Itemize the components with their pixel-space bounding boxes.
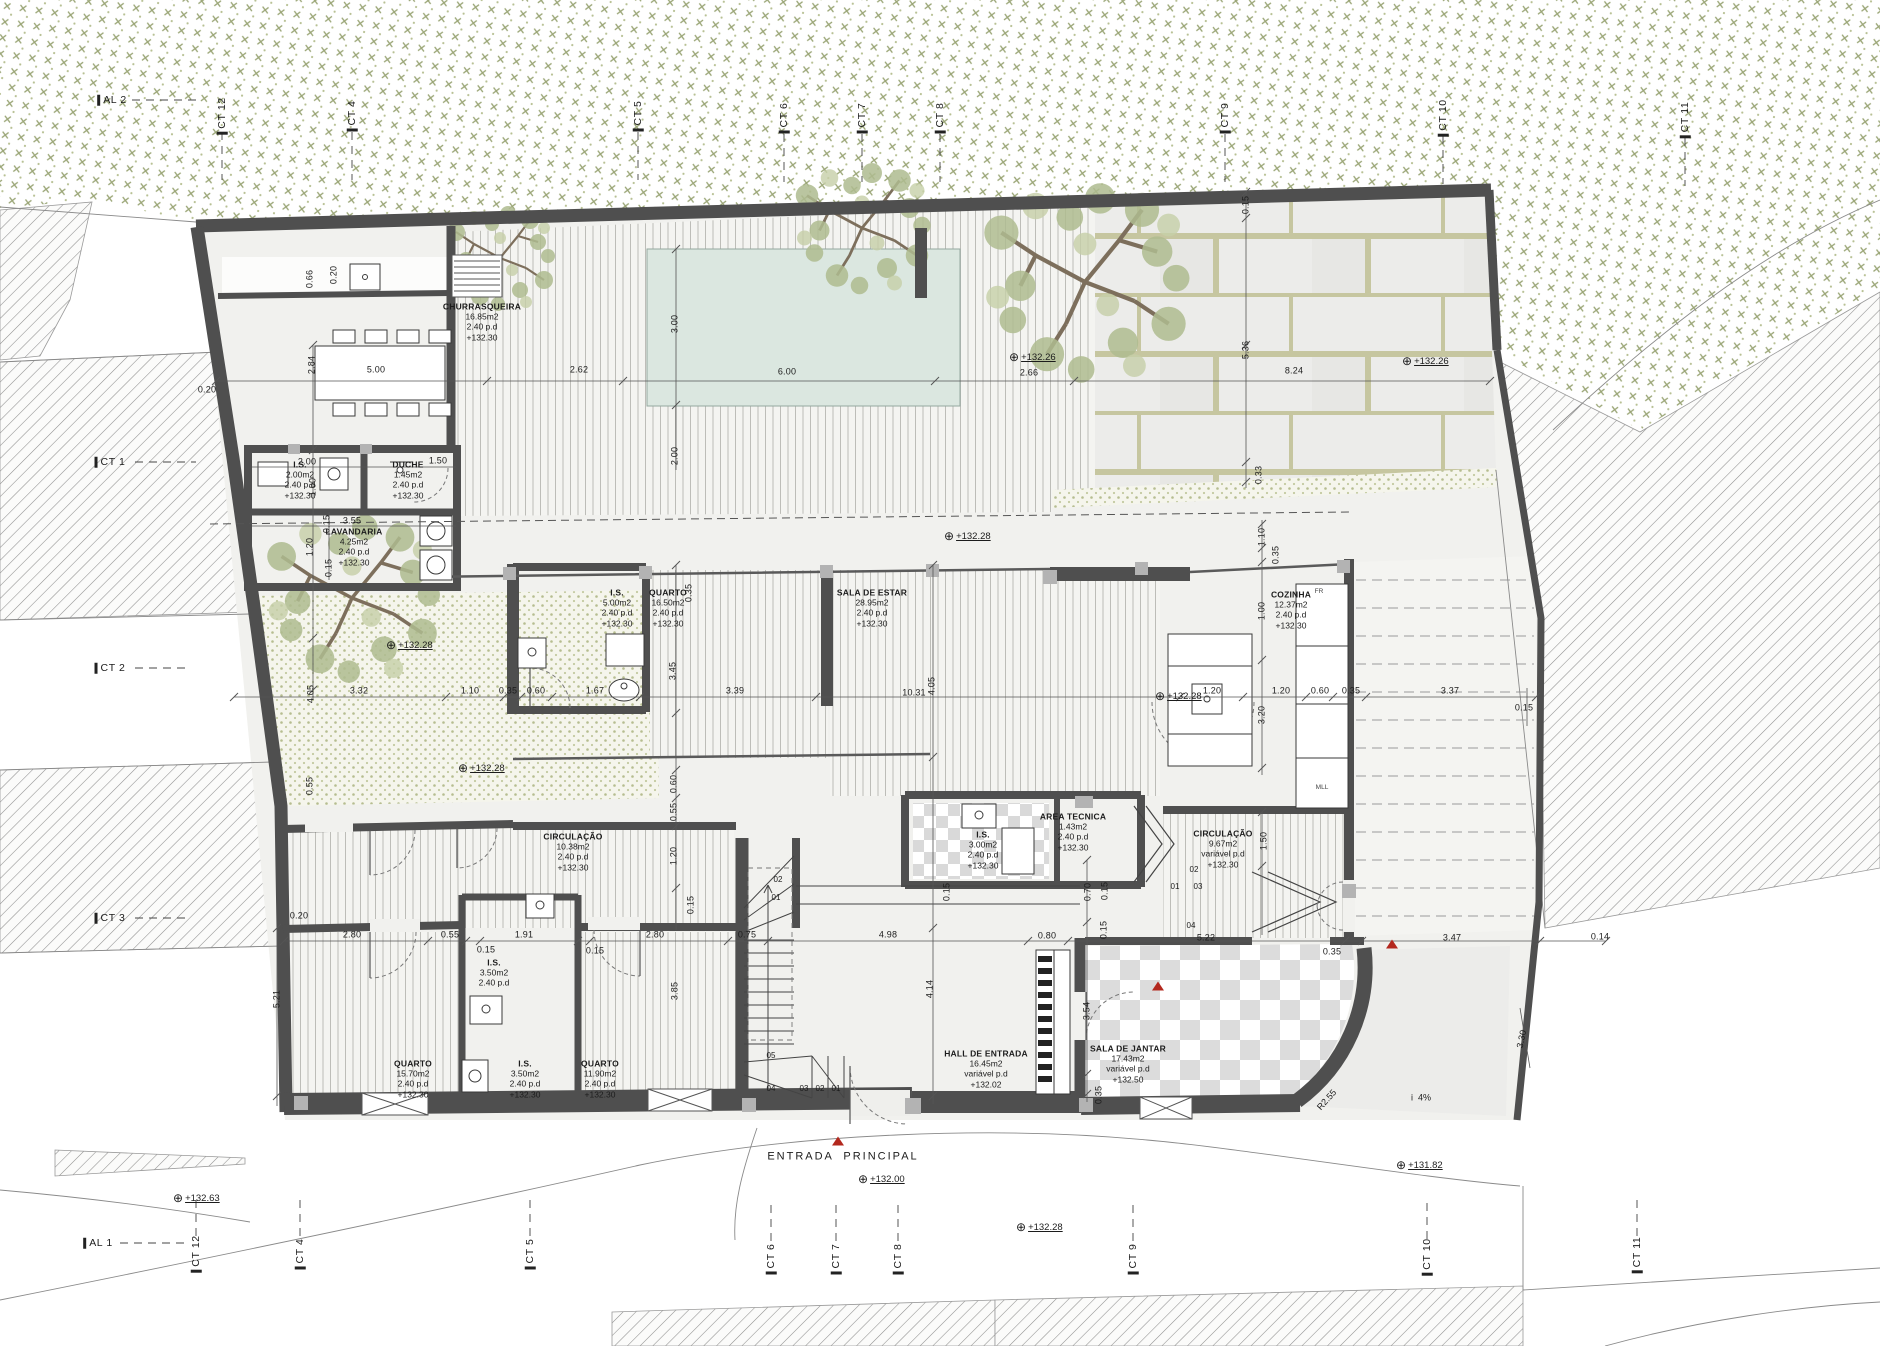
- dimension-label: 3.54: [1083, 1002, 1092, 1020]
- annotation-label: MLL: [1316, 785, 1329, 792]
- elevation-marker: ⊕+132.00: [858, 1173, 905, 1185]
- dimension-label: 0.35: [1323, 948, 1341, 957]
- dimension-label: 3.45: [669, 662, 678, 680]
- elevation-marker: ⊕+132.28: [944, 530, 991, 542]
- dimension-label: 1.20: [670, 847, 679, 865]
- dimension-label: 1.91: [515, 931, 533, 940]
- room-label: QUARTO 16.50m2 2.40 p.d +132.30: [649, 588, 687, 629]
- dimension-label: 2.66: [1020, 369, 1038, 378]
- dimension-label: 0.15: [477, 946, 495, 955]
- dimension-label: 5.21: [273, 990, 282, 1008]
- dimension-label: 0.15: [1242, 196, 1251, 214]
- room-label: CIRCULAÇÃO 9.67m2 variável p.d +132.30: [1193, 829, 1252, 870]
- dimension-label: 1.10: [461, 687, 479, 696]
- dimension-label: 1.20: [1272, 687, 1290, 696]
- level-target-icon: ⊕: [1155, 689, 1165, 703]
- dimension-label: 3.00: [671, 315, 680, 333]
- annotation-label: 03: [800, 1085, 809, 1093]
- entrance-marker-icon: [832, 1137, 844, 1146]
- dimension-label: 0.55: [306, 777, 315, 795]
- room-label: QUARTO 11.90m2 2.40 p.d +132.30: [581, 1059, 619, 1100]
- dimension-label: 0.55: [670, 803, 679, 821]
- elevation-marker: ⊕+132.28: [458, 762, 505, 774]
- dimension-label: 0.20: [290, 912, 308, 921]
- grid-marker: CT 6: [779, 103, 790, 134]
- room-label: I.S. 3.50m2 2.40 p.d: [479, 958, 510, 989]
- level-target-icon: ⊕: [386, 638, 396, 652]
- dimension-label: 0.15: [943, 883, 952, 901]
- grid-marker: CT 8: [893, 1244, 904, 1275]
- dimension-label: 2.00: [298, 458, 316, 467]
- entrance-marker-icon: [1386, 940, 1398, 949]
- grid-marker: CT 8: [935, 103, 946, 134]
- grid-marker: CT 11: [1680, 102, 1691, 139]
- level-target-icon: ⊕: [1402, 354, 1412, 368]
- level-target-icon: ⊕: [173, 1191, 183, 1205]
- level-target-icon: ⊕: [458, 761, 468, 775]
- dimension-label: 4.14: [926, 980, 935, 998]
- dimension-label: 3.39: [726, 687, 744, 696]
- annotation-label: 01: [772, 894, 781, 902]
- grid-marker: CT 3: [95, 913, 126, 924]
- grid-marker: CT 12: [217, 97, 228, 134]
- annotation-label: 02: [1190, 866, 1199, 874]
- room-label: SALA DE ESTAR 28.95m2 2.40 p.d +132.30: [837, 588, 907, 629]
- dimension-label: 0.14: [1591, 933, 1609, 942]
- room-label: LAVANDARIA 4.25m2 2.40 p.d +132.30: [326, 527, 383, 568]
- grid-marker: CT 7: [831, 1244, 842, 1275]
- level-target-icon: ⊕: [1016, 1220, 1026, 1234]
- annotation-label: R2.55: [1316, 1088, 1339, 1112]
- floor-plan: CHURRASQUEIRA 16.85m2 2.40 p.d +132.30 I…: [0, 0, 1880, 1346]
- level-target-icon: ⊕: [944, 529, 954, 543]
- grid-marker: CT 2: [95, 663, 126, 674]
- dimension-label: 0.15: [325, 559, 334, 577]
- dimension-label: 0.15: [1100, 921, 1109, 939]
- dimension-label: 1.67: [586, 687, 604, 696]
- annotation-label: 02: [774, 876, 783, 884]
- annotation-label: i 4%: [1411, 1094, 1431, 1103]
- grid-marker: CT 5: [525, 1239, 536, 1270]
- dimension-label: 3.30: [1516, 1029, 1529, 1049]
- dimension-label: 1.20: [1203, 687, 1221, 696]
- entrance-marker-icon: [1152, 982, 1164, 991]
- grid-marker: CT 9: [1220, 103, 1231, 134]
- dimension-label: 0.70: [1084, 883, 1093, 901]
- dimension-label: 5.36: [1242, 341, 1251, 359]
- dimension-label: 0.66: [306, 270, 315, 288]
- grid-marker: CT 7: [857, 103, 868, 134]
- room-label: AREA TECNICA 1.43m2 2.40 p.d +132.30: [1040, 812, 1106, 853]
- dimension-label: 0.60: [670, 775, 679, 793]
- grid-marker: AL 1: [83, 1238, 113, 1249]
- dimension-label: 1.10: [1258, 528, 1267, 546]
- dimension-label: 0.80: [1038, 932, 1056, 941]
- annotation-label: 02: [816, 1085, 825, 1093]
- annotation-label: 01: [1171, 883, 1180, 891]
- room-label: HALL DE ENTRADA 16.45m2 variável p.d +13…: [944, 1049, 1028, 1090]
- elevation-marker: ⊕+132.28: [386, 639, 433, 651]
- dimension-label: 0.15: [586, 947, 604, 956]
- level-target-icon: ⊕: [858, 1172, 868, 1186]
- elevation-marker: ⊕+132.26: [1402, 355, 1449, 367]
- annotation-label: 04: [767, 1085, 776, 1093]
- dimension-label: 0.35: [1342, 687, 1360, 696]
- annotation-label: 04: [1187, 922, 1196, 930]
- level-target-icon: ⊕: [1396, 1158, 1406, 1172]
- labels-layer: CHURRASQUEIRA 16.85m2 2.40 p.d +132.30 I…: [0, 0, 1880, 1346]
- dimension-label: 1.50: [1260, 832, 1269, 850]
- dimension-label: 4.05: [307, 685, 316, 703]
- dimension-label: 2.00: [671, 447, 680, 465]
- level-target-icon: ⊕: [1009, 350, 1019, 364]
- dimension-label: 0.15: [323, 515, 332, 533]
- grid-marker: CT 12: [191, 1235, 202, 1272]
- dimension-label: 1.00: [309, 478, 318, 496]
- grid-marker: AL 2: [97, 95, 127, 106]
- elevation-marker: ⊕+132.63: [173, 1192, 220, 1204]
- dimension-label: 0.35: [499, 687, 517, 696]
- dimension-label: 3.37: [1441, 687, 1459, 696]
- room-label: I.S. 5.00m2 2.40 p.d +132.30: [602, 588, 633, 629]
- dimension-label: 0.15: [687, 896, 696, 914]
- elevation-marker: ⊕+132.28: [1016, 1221, 1063, 1233]
- dimension-label: 10.31: [902, 689, 926, 698]
- room-label: COZINHA 12.37m2 2.40 p.d +132.30: [1271, 590, 1311, 631]
- room-label: CHURRASQUEIRA 16.85m2 2.40 p.d +132.30: [443, 302, 521, 343]
- dimension-label: 0.15: [1515, 704, 1533, 713]
- dimension-label: 6.00: [778, 368, 796, 377]
- grid-marker: CT 6: [766, 1244, 777, 1275]
- dimension-label: 0.75: [738, 931, 756, 940]
- dimension-label: 2.62: [570, 366, 588, 375]
- dimension-label: 8.24: [1285, 367, 1303, 376]
- dimension-label: 3.55: [343, 517, 361, 526]
- dimension-label: 2.84: [308, 356, 317, 374]
- annotation-label: 05: [767, 1052, 776, 1060]
- dimension-label: 0.35: [685, 584, 694, 602]
- dimension-label: 0.35: [1095, 1086, 1104, 1104]
- room-label: QUARTO 15.70m2 2.40 p.d +132.30: [394, 1059, 432, 1100]
- room-label: I.S. 3.00m2 2.40 p.d +132.30: [968, 830, 999, 871]
- grid-marker: CT 11: [1632, 1237, 1643, 1274]
- dimension-label: 0.33: [1255, 466, 1264, 484]
- elevation-marker: ⊕+132.28: [1155, 690, 1202, 702]
- annotation-label: 03: [1194, 883, 1203, 891]
- dimension-label: 0.60: [1311, 687, 1329, 696]
- dimension-label: 0.20: [330, 266, 339, 284]
- dimension-label: 0.60: [527, 687, 545, 696]
- dimension-label: 1.00: [1258, 602, 1267, 620]
- grid-marker: CT 9: [1128, 1244, 1139, 1275]
- grid-marker: CT 5: [633, 101, 644, 132]
- dimension-label: 0.20: [198, 386, 216, 395]
- room-label: CIRCULAÇÃO 10.38m2 2.40 p.d +132.30: [543, 832, 602, 873]
- elevation-marker: ⊕+132.26: [1009, 351, 1056, 363]
- elevation-marker: ⊕+131.82: [1396, 1159, 1443, 1171]
- dimension-label: 0.55: [441, 931, 459, 940]
- room-label: I.S. 3.50m2 2.40 p.d +132.30: [510, 1059, 541, 1100]
- dimension-label: 5.22: [1197, 934, 1215, 943]
- annotation-label: 01: [832, 1085, 841, 1093]
- dimension-label: 3.20: [1258, 706, 1267, 724]
- dimension-label: 3.85: [671, 982, 680, 1000]
- room-label: DUCHE 1.45m2 2.40 p.d +132.30: [392, 460, 423, 501]
- grid-marker: CT 4: [295, 1239, 306, 1270]
- dimension-label: 0.15: [1101, 882, 1110, 900]
- dimension-label: 4.98: [879, 931, 897, 940]
- grid-marker: CT 4: [347, 101, 358, 132]
- dimension-label: 2.80: [343, 931, 361, 940]
- dimension-label: 3.47: [1443, 934, 1461, 943]
- grid-marker: CT 1: [95, 457, 126, 468]
- annotation-label: FR: [1315, 589, 1324, 596]
- annotation-label: ENTRADA PRINCIPAL: [767, 1152, 918, 1163]
- dimension-label: 3.32: [350, 687, 368, 696]
- grid-marker: CT 10: [1438, 99, 1449, 136]
- dimension-label: 0.35: [1272, 546, 1281, 564]
- grid-marker: CT 10: [1422, 1238, 1433, 1275]
- room-label: SALA DE JANTAR 17.43m2 variável p.d +132…: [1090, 1044, 1166, 1085]
- dimension-label: 1.20: [306, 538, 315, 556]
- dimension-label: 5.00: [367, 366, 385, 375]
- dimension-label: 4.05: [928, 677, 937, 695]
- dimension-label: 2.80: [646, 931, 664, 940]
- dimension-label: 1.50: [429, 457, 447, 466]
